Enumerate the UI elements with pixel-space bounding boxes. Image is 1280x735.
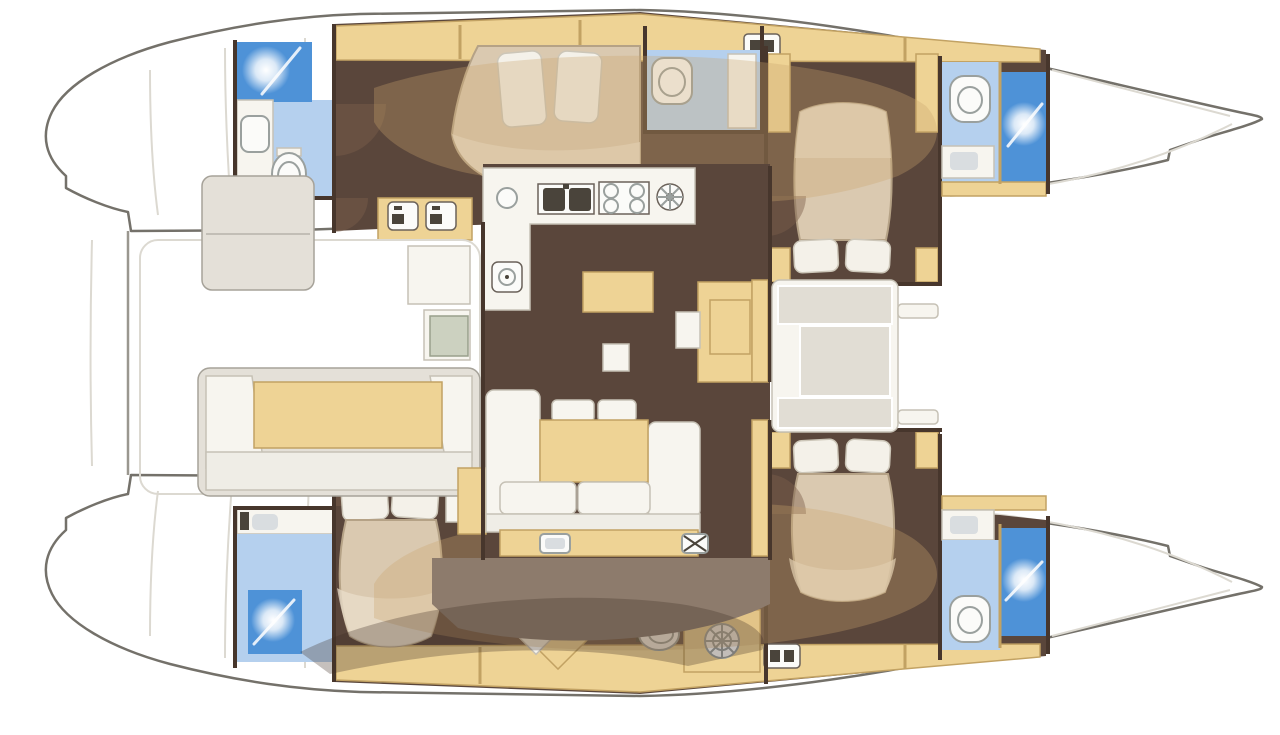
forward-bulkhead [752, 420, 768, 556]
washbasin-icon [252, 514, 278, 530]
washbasin-icon [426, 202, 456, 230]
round-hob-icon [657, 184, 683, 210]
pillow [793, 439, 839, 473]
sofa-back-cushion [598, 400, 636, 422]
forward-cockpit [772, 280, 938, 432]
bench-base [206, 452, 472, 490]
bench-cushion [778, 286, 892, 324]
nav-seat [676, 312, 700, 348]
double-sink-icon [538, 184, 594, 214]
catamaran-deck-plan [0, 0, 1280, 735]
bench-cushion [254, 382, 442, 448]
cockpit-bench [198, 368, 480, 496]
aft-sideboard [500, 530, 708, 556]
floor-plan [0, 0, 1280, 735]
galley-island [583, 272, 653, 312]
forward-bulkhead [752, 280, 768, 382]
toilet-icon [950, 76, 990, 122]
washbasin-icon [388, 202, 418, 230]
sofa-seat-cushion [500, 482, 576, 514]
sofa-arm [648, 422, 700, 518]
vent-grille-icon [764, 644, 800, 668]
cool-box-icon [430, 316, 468, 356]
four-burner-stove-icon [599, 182, 649, 214]
coffee-table [540, 420, 648, 482]
deck-hatch-icon [603, 344, 629, 371]
pillow [793, 239, 839, 273]
sofa-seat-cushion [578, 482, 650, 514]
toilet-icon [950, 596, 990, 642]
pillow [845, 239, 891, 273]
washbasin-icon [950, 516, 978, 534]
washbasin-counter [237, 508, 334, 534]
nightstand [916, 432, 938, 468]
washbasin-icon [241, 116, 269, 152]
sill [942, 496, 1046, 510]
sofa-back-cushion [552, 400, 594, 422]
deck-step [898, 410, 938, 424]
deck-step [898, 304, 938, 318]
pillow [845, 439, 891, 473]
round-sink-icon [497, 188, 517, 208]
cockpit-cabinet [408, 246, 470, 304]
bench-cushion [800, 326, 890, 396]
dishwasher-icon [492, 262, 522, 292]
cockpit-wet-bar [202, 176, 314, 290]
port-forward-head [942, 56, 1048, 196]
washbasin-icon [950, 152, 978, 170]
sill [942, 182, 1046, 196]
bench-cushion [778, 398, 892, 428]
nightstand [916, 248, 938, 282]
